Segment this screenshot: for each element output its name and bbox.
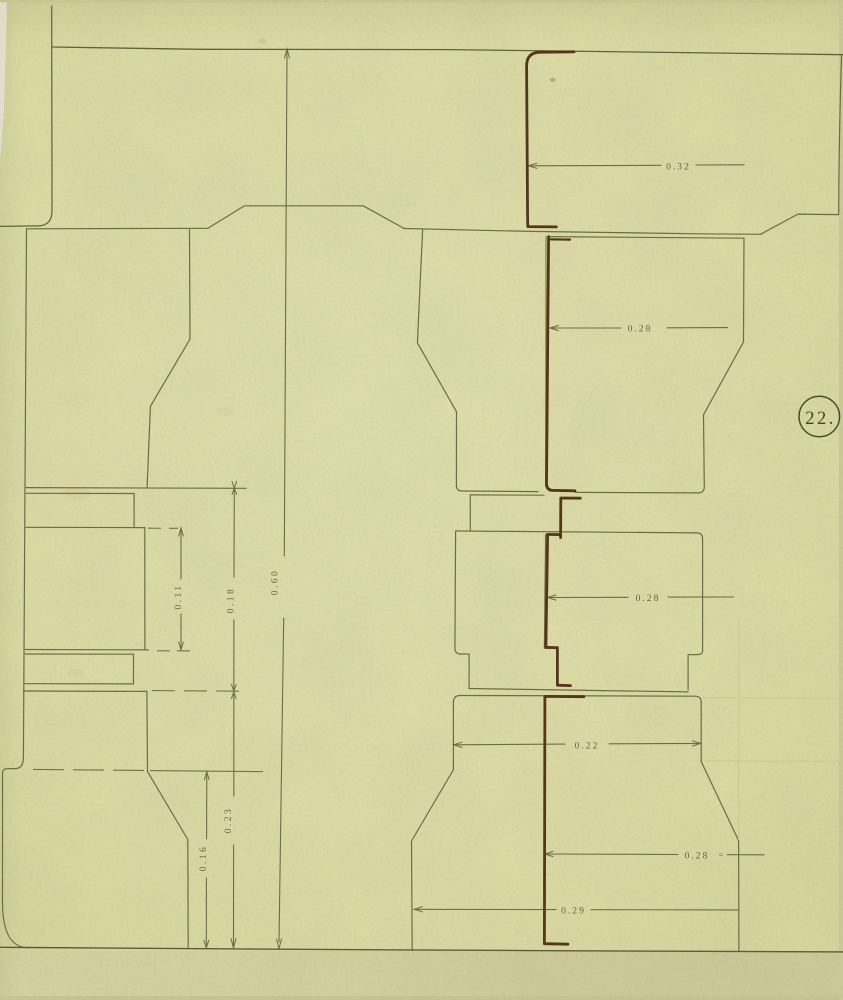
svg-text:0.29: 0.29 bbox=[561, 905, 586, 916]
svg-text:0.18: 0.18 bbox=[226, 587, 237, 613]
svg-text:0.16: 0.16 bbox=[198, 845, 209, 871]
svg-text:0.28: 0.28 bbox=[685, 850, 710, 861]
svg-text:0.60: 0.60 bbox=[269, 569, 280, 595]
svg-text:0.28: 0.28 bbox=[628, 324, 653, 335]
svg-text:0.23: 0.23 bbox=[223, 807, 234, 833]
svg-text:22.: 22. bbox=[805, 409, 836, 429]
svg-text:0.11: 0.11 bbox=[173, 583, 184, 609]
svg-text:0.32: 0.32 bbox=[666, 162, 691, 173]
svg-text:0.28: 0.28 bbox=[636, 593, 661, 604]
svg-text:0.22: 0.22 bbox=[575, 740, 600, 751]
svg-text:=: = bbox=[719, 851, 726, 860]
